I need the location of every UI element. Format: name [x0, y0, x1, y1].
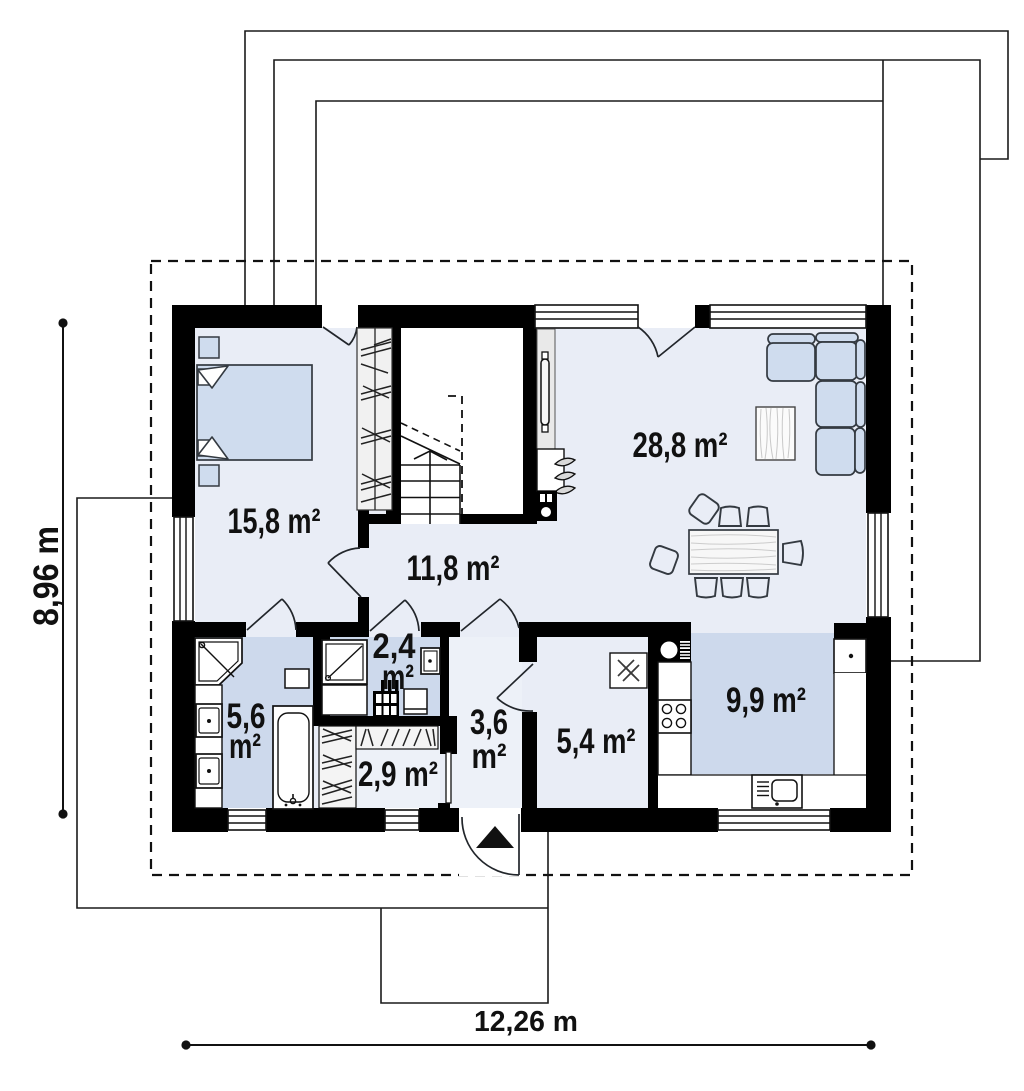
svg-text:28,8 m²: 28,8 m² — [633, 426, 728, 465]
svg-text:5,4 m²: 5,4 m² — [557, 722, 636, 761]
svg-text:8,96 m: 8,96 m — [27, 526, 66, 626]
svg-text:15,8 m²: 15,8 m² — [228, 502, 321, 541]
svg-text:11,8 m²: 11,8 m² — [407, 549, 500, 588]
svg-text:m²: m² — [229, 727, 261, 766]
svg-text:2,9 m²: 2,9 m² — [358, 755, 438, 794]
svg-text:m²: m² — [472, 737, 507, 776]
svg-text:m²: m² — [382, 658, 414, 697]
svg-text:12,26 m: 12,26 m — [474, 1006, 578, 1038]
svg-text:9,9 m²: 9,9 m² — [726, 681, 806, 720]
